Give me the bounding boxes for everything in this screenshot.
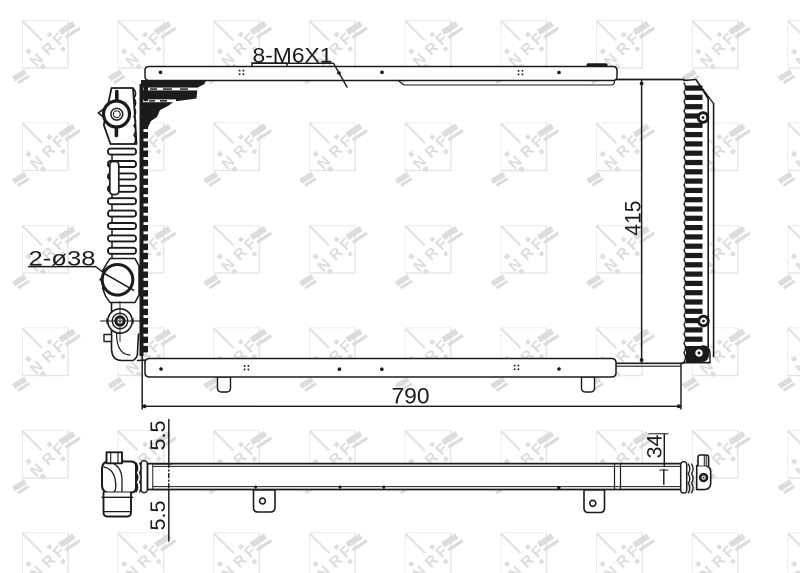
svg-text:5.5: 5.5: [146, 420, 170, 450]
svg-text:5.5: 5.5: [146, 500, 170, 530]
svg-text:8-M6X1: 8-M6X1: [253, 43, 333, 67]
svg-text:790: 790: [392, 384, 430, 409]
svg-text:2-ø38: 2-ø38: [29, 246, 96, 270]
svg-text:34: 34: [643, 434, 667, 458]
svg-text:415: 415: [621, 201, 646, 236]
